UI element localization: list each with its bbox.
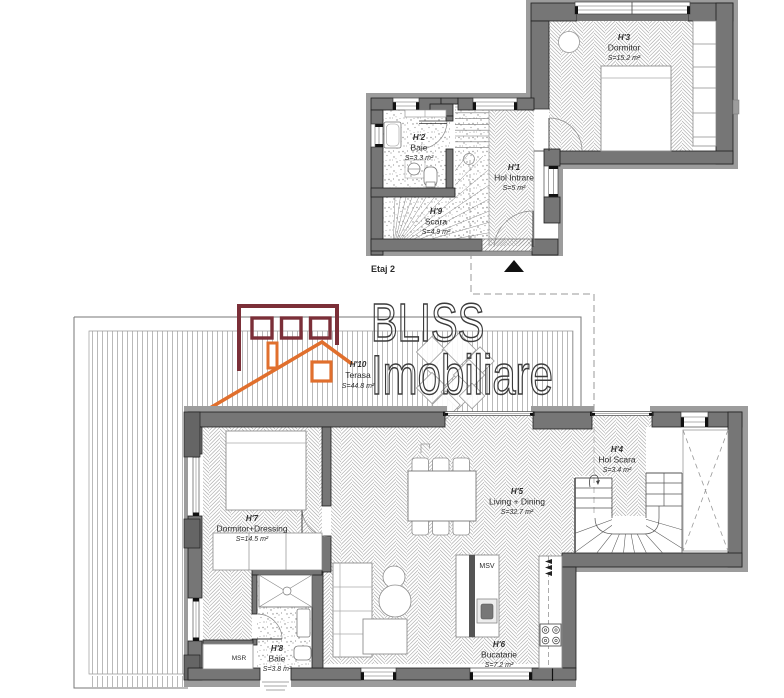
svg-text:S=4.9 m²: S=4.9 m² [422,229,451,236]
svg-text:MSV: MSV [479,563,495,570]
svg-text:Baie: Baie [268,654,285,664]
svg-text:Hol Intrare: Hol Intrare [494,173,534,183]
svg-text:Bucatarie: Bucatarie [481,650,517,660]
svg-text:H'2: H'2 [413,133,426,142]
svg-text:Hol Scara: Hol Scara [598,455,636,465]
svg-text:S=3.3 m²: S=3.3 m² [405,155,434,162]
svg-text:H'3: H'3 [618,33,631,42]
svg-text:H'7: H'7 [246,514,259,523]
svg-text:S=15.2 m²: S=15.2 m² [608,55,641,62]
svg-text:MSR: MSR [232,655,247,662]
svg-text:S=3.4 m²: S=3.4 m² [603,467,632,474]
svg-text:S=5 m²: S=5 m² [503,185,526,192]
svg-text:Scara: Scara [425,217,447,227]
svg-text:Etaj 2: Etaj 2 [371,264,395,274]
svg-text:H'4: H'4 [611,445,624,454]
svg-text:S=14.5 m²: S=14.5 m² [236,536,269,543]
svg-text:Terasa: Terasa [345,370,371,380]
svg-text:H'1: H'1 [508,163,521,172]
svg-text:S=3.8 m²: S=3.8 m² [263,666,292,673]
svg-text:S=44.8 m²: S=44.8 m² [342,383,375,390]
svg-text:H'9: H'9 [430,207,443,216]
svg-text:Dormitor+Dressing: Dormitor+Dressing [216,524,287,534]
svg-text:H'6: H'6 [493,640,506,649]
svg-text:H'5: H'5 [511,487,524,496]
svg-text:H'10: H'10 [350,360,367,369]
svg-text:S=7.2 m²: S=7.2 m² [485,662,514,669]
svg-text:Living + Dining: Living + Dining [489,497,545,507]
svg-text:Dormitor: Dormitor [608,43,641,53]
svg-text:H'8: H'8 [271,644,284,653]
svg-text:Baie: Baie [410,143,427,153]
svg-text:S=32.7 m²: S=32.7 m² [501,509,534,516]
svg-text:Imobiliare: Imobiliare [371,344,553,406]
